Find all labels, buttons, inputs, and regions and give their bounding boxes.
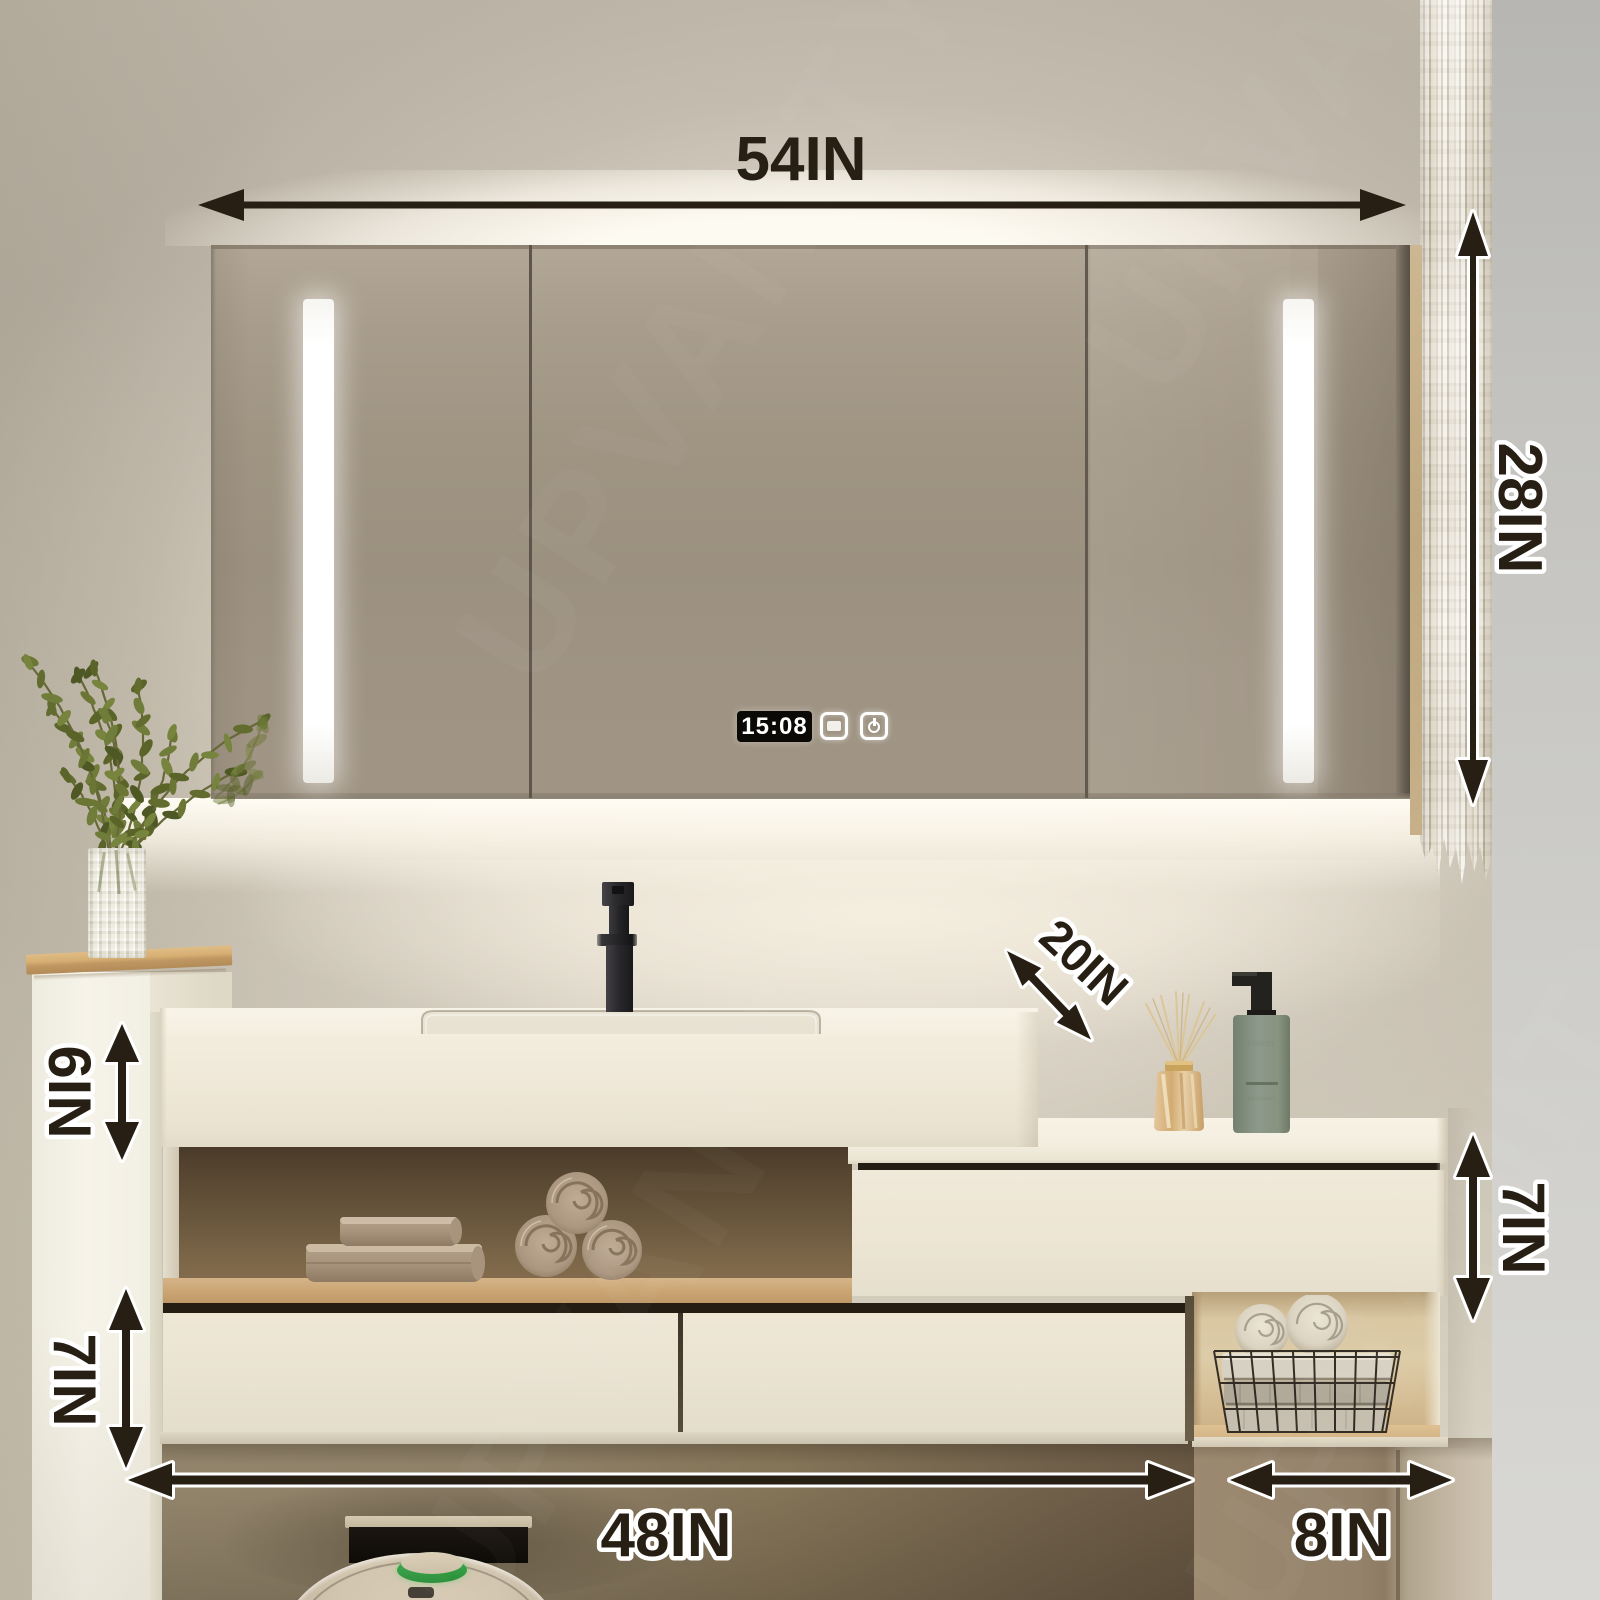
svg-text:54IN: 54IN [736,125,867,194]
svg-text:7IN: 7IN [41,1333,108,1426]
svg-text:6IN: 6IN [36,1045,103,1138]
svg-text:8IN: 8IN [1294,1501,1390,1570]
svg-text:7IN: 7IN [1490,1181,1557,1274]
svg-text:48IN: 48IN [601,1501,732,1570]
svg-text:28IN: 28IN [1485,443,1554,574]
